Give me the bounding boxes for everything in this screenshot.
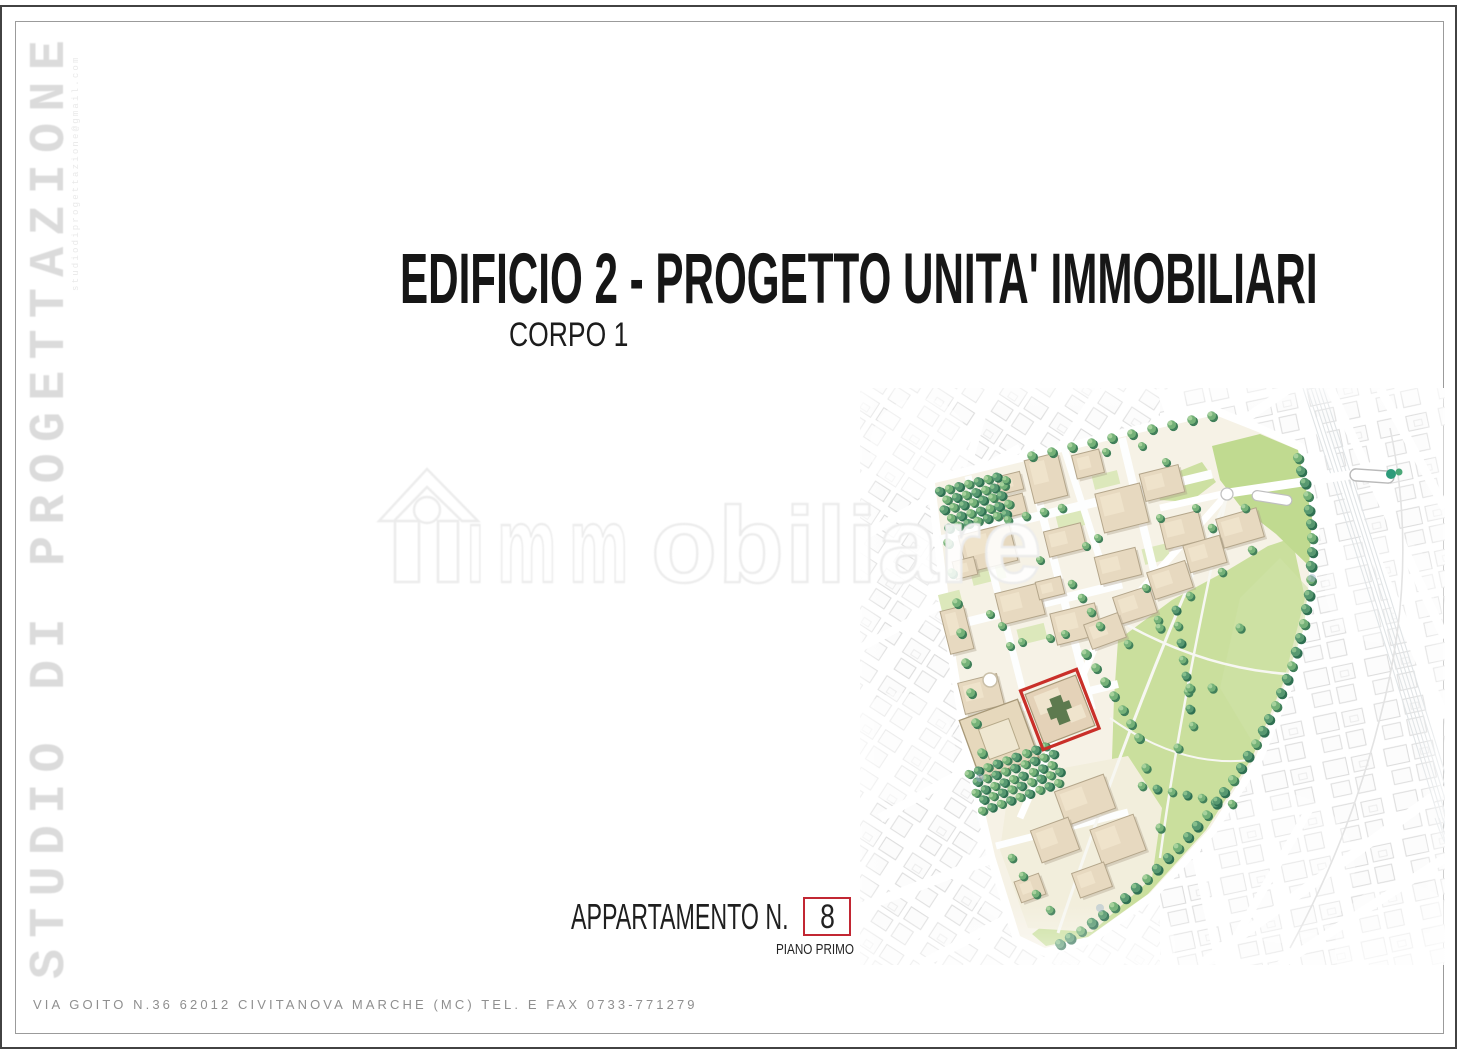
svg-text:ımm: ımm: [466, 486, 641, 600]
svg-text:obiliare: obiliare: [651, 484, 1043, 600]
